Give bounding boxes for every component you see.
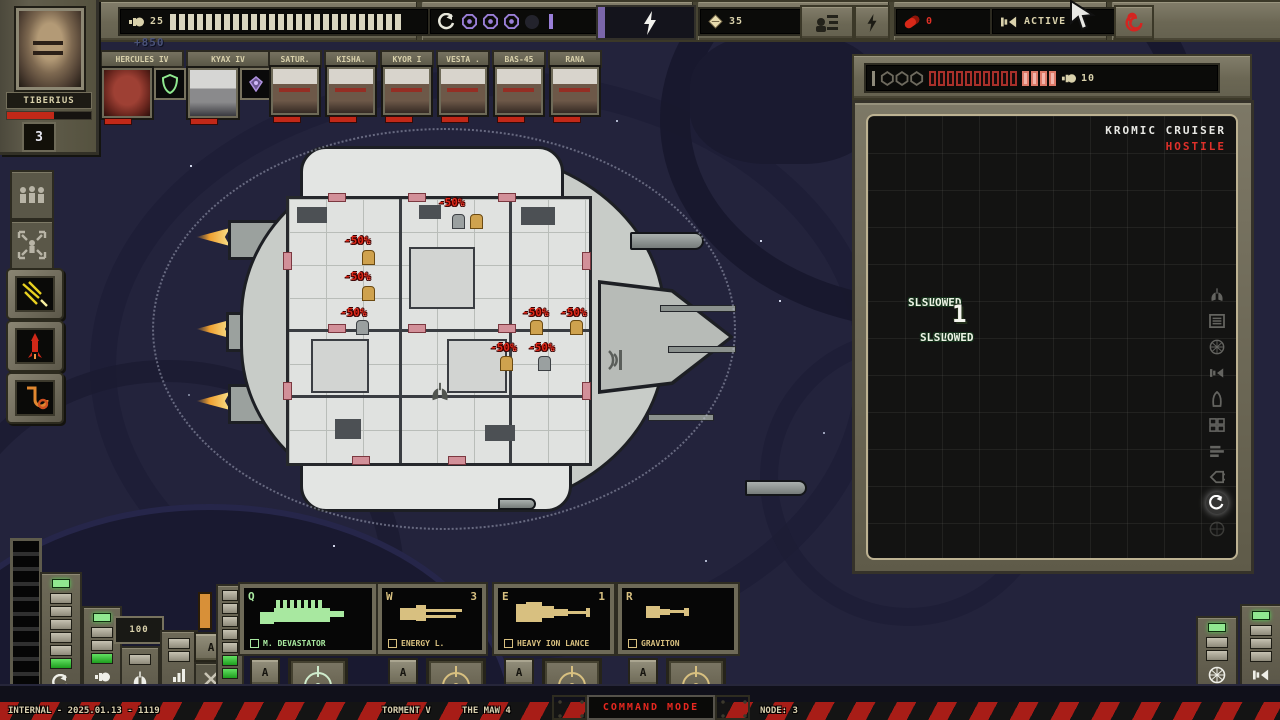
pip-empty [525, 15, 539, 29]
charge-slot [222, 629, 238, 640]
game-screen: { "top_bar": { "hull": { "value": "25", … [0, 0, 1280, 720]
damage-label: -50% [522, 306, 549, 319]
power-slot [168, 651, 190, 662]
hull-gauge-icon [128, 14, 144, 30]
tow-hook-icon [21, 384, 49, 412]
crew-card[interactable]: RANA [548, 50, 602, 68]
commander-panel: TIBERIUS 3 [0, 0, 99, 155]
enemy-ship-name: KROMIC CRUISER [1040, 124, 1226, 137]
enemy-hostility-status: HOSTILE [1040, 140, 1226, 153]
crew-name: KYOR I [380, 50, 434, 68]
enemy-hull-filled-segments [1022, 71, 1056, 86]
enemy-hull-readout: 10 [864, 63, 1220, 93]
crew-card[interactable]: KYOR I [380, 50, 434, 68]
charge-tick [549, 14, 553, 29]
status-effect-label: SLOWEDSLOWED [920, 331, 974, 344]
power-slot [1206, 637, 1228, 648]
crew-portrait [383, 67, 431, 115]
disperse-crew-button[interactable] [10, 220, 54, 270]
enemy-slot-icons [880, 71, 924, 86]
crew-card[interactable]: KYAX IV [186, 50, 270, 68]
psy-buff-badge [240, 68, 272, 100]
weapon-art [638, 598, 698, 624]
enemy-hull-empty-segments [929, 71, 1017, 86]
throttle-lever[interactable] [198, 592, 212, 630]
crew-portrait [102, 68, 152, 118]
projectile-icon [903, 14, 921, 30]
crew-name: BAS-45 [492, 50, 546, 68]
threat-value: 0 [926, 16, 933, 27]
crew-name: SATUR. [268, 50, 322, 68]
charge-slot [222, 603, 238, 614]
enemy-sensors-icon[interactable] [1206, 362, 1228, 384]
power-slot [50, 619, 72, 630]
weapon-module: E 1 HEAVY ION LANCE A [494, 584, 614, 654]
charge-slot [222, 616, 238, 627]
weapon-art [398, 598, 468, 626]
crew-card[interactable]: KISHA. [324, 50, 378, 68]
crew-card[interactable]: HERCULES IV [100, 50, 184, 68]
crew-health-bar [104, 118, 132, 125]
weapon-ammo: 1 [598, 590, 605, 603]
power-slot [91, 640, 113, 651]
crew-roster-icon [814, 13, 840, 33]
crew-card[interactable]: SATUR. [268, 50, 322, 68]
damage-label: -50% [340, 306, 367, 319]
ability-missile-button[interactable] [6, 320, 64, 372]
metal-plate [552, 695, 587, 720]
enemy-hull-value: 10 [1081, 73, 1095, 84]
laser-burst-icon [21, 280, 49, 308]
crew-name: VESTA . [436, 50, 490, 68]
crew-portrait [271, 67, 319, 115]
power-slot [129, 654, 151, 665]
crew-name: HERCULES IV [100, 50, 184, 68]
crew-health-bar [553, 116, 581, 123]
damage-label: -50% [560, 306, 587, 319]
visor [391, 88, 422, 92]
scrap-float-text: +850 [134, 36, 165, 49]
shield-icon [161, 74, 179, 94]
crew-health-bar [190, 118, 218, 125]
charge-slot-on [222, 655, 238, 666]
weapon-hotkey: E [502, 590, 509, 603]
shield-mesh-icon [1208, 666, 1226, 684]
crew-portrait [551, 67, 599, 115]
spiral-icon [1123, 12, 1145, 34]
scrap-value: 35 [729, 16, 743, 27]
gem-icon [248, 76, 264, 92]
enemy-systems-column [1206, 284, 1228, 540]
power-slot [168, 638, 190, 649]
ability-tow-hook-button[interactable] [6, 372, 64, 424]
power-slot-on [91, 653, 113, 664]
status-led [93, 613, 111, 622]
hull-segment-bar [170, 14, 401, 30]
sensor-dish-icon [1000, 14, 1018, 30]
power-slot [91, 627, 113, 638]
charge-strip [598, 7, 605, 38]
visor [559, 88, 590, 92]
ability-screen [15, 276, 55, 312]
weapon-hotkey: W [386, 590, 393, 603]
metal-plate [715, 695, 750, 720]
power-bolt-icon [866, 13, 878, 33]
enemy-gauge-icon [1061, 71, 1076, 86]
disperse-icon [17, 230, 47, 260]
enemy-weapons-icon[interactable] [1206, 440, 1228, 462]
weapon-module: W 3 ENERGY L. A [378, 584, 486, 654]
hull-value: 25 [150, 16, 164, 27]
crew-name: RANA [548, 50, 602, 68]
weapon-label: M. DEVASTATOR [250, 639, 326, 648]
weapon-label: GRAVITON [628, 639, 680, 648]
damage-label: -50% [344, 270, 371, 283]
enemy-status-bar: 10 [852, 54, 1252, 100]
command-mode-panel: COMMAND MODE [552, 695, 750, 720]
weapon-hotkey: Q [248, 590, 255, 603]
crew-portrait [188, 68, 238, 118]
gauge-icon [94, 669, 110, 685]
power-slot [50, 593, 72, 604]
crew-portrait [439, 67, 487, 115]
autofire-keycap[interactable]: A [628, 658, 658, 686]
crew-health-bar [329, 116, 357, 123]
enemy-evade-icon-active[interactable] [1206, 492, 1228, 514]
power-slot [1250, 651, 1272, 662]
oxygen-readout: 100 [114, 616, 164, 644]
enemy-o2-icon[interactable] [1206, 284, 1228, 306]
charge-slot [222, 590, 238, 601]
crew-card[interactable]: BAS-45 [492, 50, 546, 68]
menu-button[interactable] [1114, 5, 1154, 40]
visor [279, 88, 310, 92]
power-slot [50, 606, 72, 617]
missile-icon [22, 332, 48, 360]
crew-group-icon [17, 184, 47, 206]
bolt-wrap [605, 7, 694, 38]
face-shadow [33, 41, 63, 45]
sensors-status: ACTIVE [1024, 16, 1066, 27]
distant-ship [745, 480, 807, 496]
status-led [52, 579, 70, 588]
damage-label: -50% [344, 234, 371, 247]
health-fill [7, 112, 54, 119]
signal-icon [171, 667, 187, 683]
weapon-chip [504, 639, 513, 648]
status-led [1208, 623, 1226, 632]
autofire-keycap[interactable]: A [250, 658, 280, 686]
commander-nameplate: TIBERIUS [6, 92, 92, 109]
enemy-shield-icon[interactable] [1206, 336, 1228, 358]
enemy-shield-icon-offline[interactable] [1206, 518, 1228, 540]
autofire-keycap[interactable]: A [504, 658, 534, 686]
ability-screen [15, 328, 55, 364]
weapon-chip [250, 639, 259, 648]
weapon-art [514, 598, 594, 626]
damage-label: -50% [438, 196, 465, 209]
select-all-crew-button[interactable] [10, 170, 54, 220]
scrap-readout: 35 [698, 7, 808, 36]
power-button[interactable] [854, 5, 890, 40]
weapon-screen[interactable]: R GRAVITON [618, 584, 738, 654]
crew-roster-button[interactable] [800, 5, 854, 40]
sensors-readout: ACTIVE [990, 7, 1122, 36]
crew-health-bar [273, 116, 301, 123]
pip-icon [483, 14, 498, 29]
commander-portrait[interactable] [16, 8, 84, 90]
weapon-module: R GRAVITON A [618, 584, 738, 654]
commander-health-bar [6, 111, 92, 120]
node-label: NODE: 3 [760, 706, 798, 716]
torment-level: TORMENT V [382, 706, 431, 716]
power-slot [1250, 625, 1272, 636]
shield-buff-badge [154, 68, 186, 100]
weapon-label: HEAVY ION LANCE [504, 639, 589, 648]
build-info: INTERNAL - 2025.01.13 - 1119 [8, 706, 160, 716]
damage-label: -50% [528, 341, 555, 354]
hull-readout: 25 [118, 7, 430, 36]
enemy-battery-icon[interactable] [1206, 310, 1228, 332]
autofire-keycap[interactable]: A [388, 658, 418, 686]
pip-icon [504, 14, 519, 29]
weapon-screen[interactable]: E 1 HEAVY ION LANCE [494, 584, 614, 654]
power-slot [50, 632, 72, 643]
crew-portrait [495, 67, 543, 115]
power-slot [1250, 638, 1272, 649]
power-slot [50, 645, 72, 656]
status-led [1252, 611, 1270, 620]
weapon-chip [388, 639, 397, 648]
jump-charge-panel [596, 5, 696, 40]
tick [872, 71, 875, 86]
player-shield-ellipse [152, 128, 736, 530]
mouse-cursor [1068, 0, 1096, 32]
charge-slot-on [222, 668, 238, 679]
power-slot [1206, 650, 1228, 661]
reserve-counter: 3 [22, 122, 56, 152]
crew-name: KISHA. [324, 50, 378, 68]
threat-readout: 0 [894, 7, 1002, 36]
crew-name: KYAX IV [186, 50, 270, 68]
visor [335, 88, 366, 92]
ability-screen [15, 380, 55, 416]
visor [503, 88, 534, 92]
weapon-screen[interactable]: W 3 ENERGY L. [378, 584, 486, 654]
location-label: THE MAW 4 [462, 706, 511, 716]
weapon-hotkey: R [626, 590, 633, 603]
pip-icon [462, 14, 477, 29]
enemy-engine-icon[interactable] [1206, 466, 1228, 488]
damage-label: -50% [490, 341, 517, 354]
power-ladder [10, 538, 42, 704]
crew-portrait [327, 67, 375, 115]
ability-laser-barrage-button[interactable] [6, 268, 64, 320]
weapon-label: ENERGY L. [388, 639, 444, 648]
weapon-art [260, 598, 348, 628]
command-mode-label: COMMAND MODE [587, 695, 715, 720]
power-slot-on [50, 658, 72, 669]
enemy-teleporter-icon[interactable] [1206, 388, 1228, 410]
weapon-ammo: 3 [470, 590, 477, 603]
visor [447, 88, 478, 92]
maneuver-readout [428, 7, 606, 36]
charge-slot [222, 642, 238, 653]
oxygen-value: 100 [129, 625, 148, 635]
lightning-icon [642, 11, 658, 35]
reserve-value: 3 [35, 130, 43, 145]
boarding-count: 1 [952, 300, 966, 328]
weapon-module: Q M. DEVASTATOR A [240, 584, 376, 654]
enemy-lockers-icon[interactable] [1206, 414, 1228, 436]
weapon-chip [628, 639, 637, 648]
sensor-dish-icon [1252, 667, 1270, 683]
crew-health-bar [441, 116, 469, 123]
scrap-icon [708, 14, 723, 29]
crew-health-bar [385, 116, 413, 123]
crew-health-bar [497, 116, 525, 123]
commander-name: TIBERIUS [23, 96, 74, 106]
crew-card[interactable]: VESTA . [436, 50, 490, 68]
evade-icon [438, 13, 456, 31]
weapon-screen[interactable]: Q M. DEVASTATOR [240, 584, 376, 654]
